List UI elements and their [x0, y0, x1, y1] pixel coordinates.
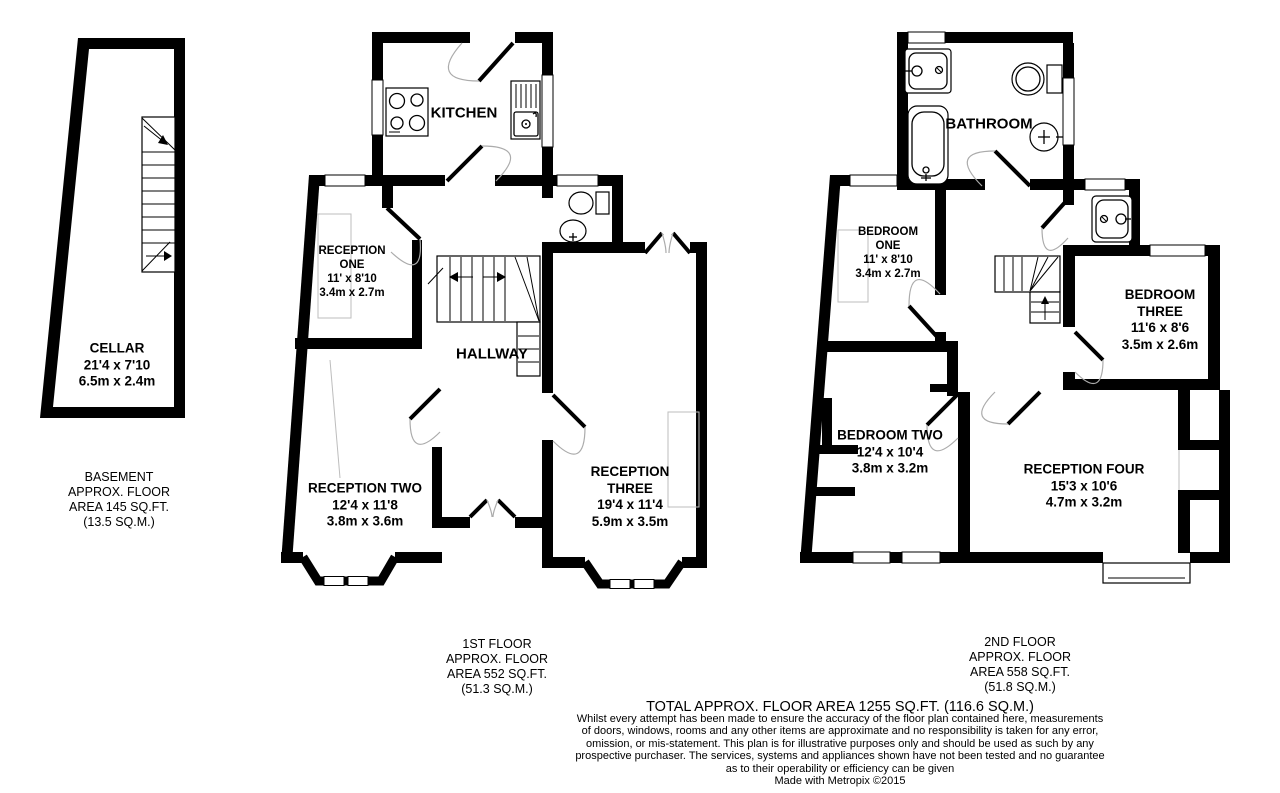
room-label-kitchen: KITCHEN	[431, 104, 498, 123]
wc-basin-icon	[560, 220, 586, 242]
stove-icon	[386, 88, 428, 136]
floorplan-drawing	[0, 0, 1280, 793]
room-label-cellar: CELLAR 21'4 x 7'10 6.5m x 2.4m	[79, 340, 156, 390]
landing-stairs	[995, 256, 1060, 323]
room-label-reception-two: RECEPTION TWO 12'4 x 11'8 3.8m x 3.6m	[308, 480, 422, 530]
room-label-bedroom-three: BEDROOM THREE 11'6 x 8'6 3.5m x 2.6m	[1122, 287, 1199, 353]
kitchen-sink-icon	[511, 81, 540, 139]
room-label-reception-four: RECEPTION FOUR 15'3 x 10'6 4.7m x 3.2m	[1024, 461, 1145, 511]
landing-basin-icon	[1092, 196, 1132, 242]
credit-text: Made with Metropix ©2015	[774, 775, 905, 787]
floorplan-page: CELLAR 21'4 x 7'10 6.5m x 2.4m KITCHEN R…	[0, 0, 1280, 793]
basement-floor-label: BASEMENT APPROX. FLOOR AREA 145 SQ.FT. (…	[68, 470, 170, 530]
room-label-reception-three: RECEPTION THREE 19'4 x 11'4 5.9m x 3.5m	[591, 464, 670, 530]
room-label-bedroom-two: BEDROOM TWO 12'4 x 10'4 3.8m x 3.2m	[837, 427, 943, 477]
cellar-stairs	[142, 117, 175, 272]
room-label-bathroom: BATHROOM	[945, 115, 1032, 134]
second-floor-label: 2ND FLOOR APPROX. FLOOR AREA 558 SQ.FT. …	[969, 635, 1071, 695]
room-label-reception-one: RECEPTION ONE 11' x 8'10 3.4m x 2.7m	[318, 244, 385, 300]
bathtub-icon	[908, 106, 948, 184]
disclaimer-text: Whilst every attempt has been made to en…	[350, 713, 1280, 775]
bathroom-toilet-icon	[1012, 63, 1062, 95]
wc-toilet-icon	[569, 192, 609, 214]
room-label-bedroom-one: BEDROOM ONE 11' x 8'10 3.4m x 2.7m	[855, 225, 920, 281]
bathroom-sink-icon	[905, 49, 951, 93]
bathroom-basin-icon	[1030, 123, 1063, 151]
room-label-hallway: HALLWAY	[456, 345, 528, 364]
first-floor-bay-windows	[303, 557, 682, 589]
first-floor-label: 1ST FLOOR APPROX. FLOOR AREA 552 SQ.FT. …	[446, 637, 548, 697]
